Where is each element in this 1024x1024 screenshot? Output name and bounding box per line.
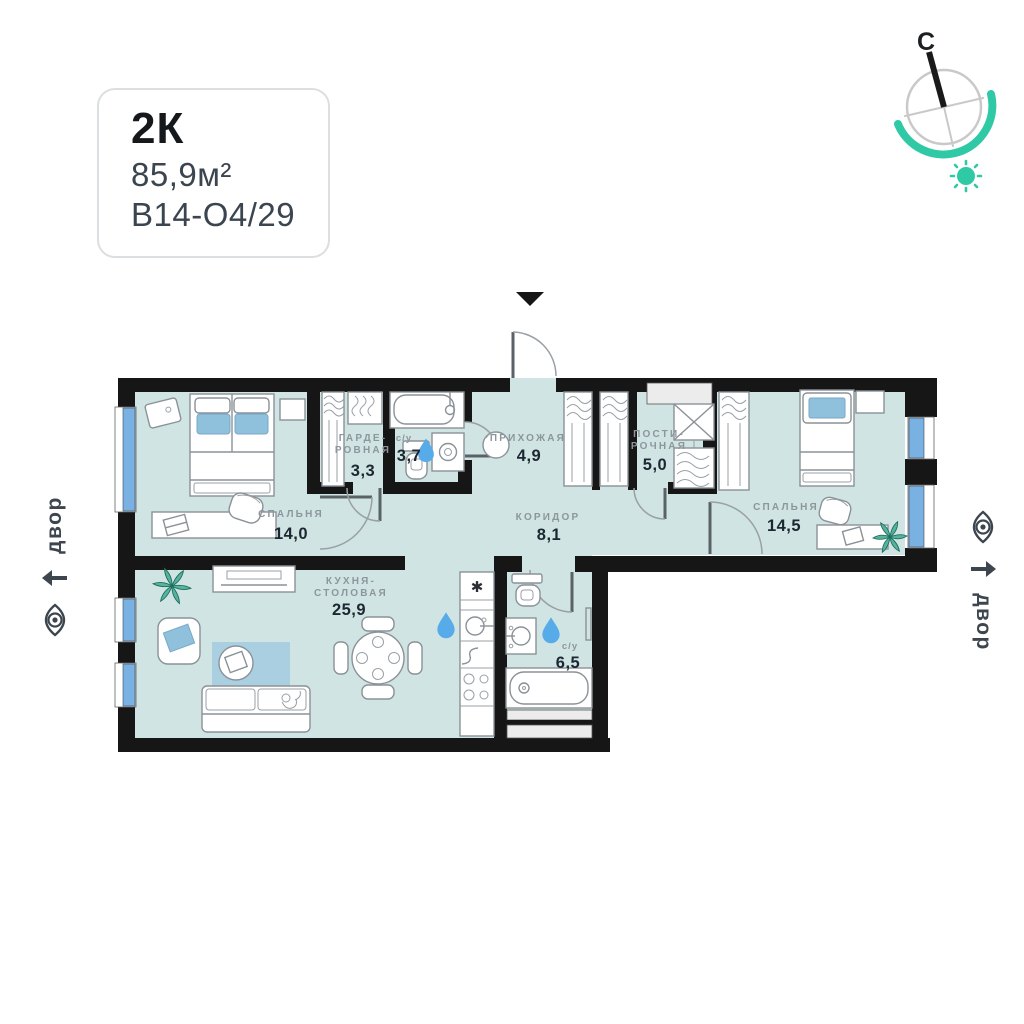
room-area: 6,5 <box>556 654 580 672</box>
sun-icon <box>951 161 981 191</box>
unit-area: 85,9м² <box>131 155 328 195</box>
compass: С <box>880 18 1015 203</box>
eye-icon <box>42 602 68 638</box>
compass-needle <box>929 52 944 107</box>
room-area: 8,1 <box>537 526 561 544</box>
fridge-marker: ✱ <box>471 579 484 596</box>
duct-niche <box>507 710 592 738</box>
room-name: КУХНЯ- <box>326 576 376 587</box>
wall-niche <box>647 383 712 404</box>
room-name: РОЧНАЯ <box>631 441 687 452</box>
room-area: 5,0 <box>643 456 667 474</box>
unit-type: 2К <box>131 104 328 155</box>
courtyard-text: двор <box>43 496 67 554</box>
direction-arrow-icon <box>41 568 69 588</box>
room-name: ПОСТИ- <box>633 429 685 440</box>
unit-code: В14-О4/29 <box>131 195 328 235</box>
room-area: 25,9 <box>332 601 366 619</box>
room-name: СТОЛОВАЯ <box>314 588 388 599</box>
direction-arrow-icon <box>969 559 997 579</box>
unit-info-card: 2К 85,9м² В14-О4/29 <box>97 88 330 258</box>
room-area: 3,3 <box>351 462 375 480</box>
room-name: КОРИДОР <box>516 512 581 523</box>
room-area: 3,7 <box>397 447 421 465</box>
room-name: СПАЛЬНЯ <box>258 509 324 520</box>
room-name: ГАРДЕ- <box>339 433 388 444</box>
courtyard-text: двор <box>971 593 995 651</box>
room-name: ПРИХОЖАЯ <box>490 433 566 444</box>
room-area: 4,9 <box>517 447 541 465</box>
eye-icon <box>970 509 996 545</box>
room-area: 14,0 <box>274 525 308 543</box>
room-name: с/у <box>562 641 578 652</box>
floor-plan: ✱ СПАЛЬНЯ 14,0 ГАРДЕ- РОВНАЯ 3,3 с/у 3,7 <box>100 280 960 770</box>
room-name: СПАЛЬНЯ <box>753 502 819 513</box>
room-name: с/у <box>396 433 412 444</box>
courtyard-label-right: двор <box>961 490 1005 670</box>
room-name: РОВНАЯ <box>335 445 391 456</box>
entrance-marker-icon <box>516 292 544 306</box>
room-area: 14,5 <box>767 517 801 535</box>
courtyard-label-left: двор <box>33 477 77 657</box>
compass-north-label: С <box>917 28 935 56</box>
